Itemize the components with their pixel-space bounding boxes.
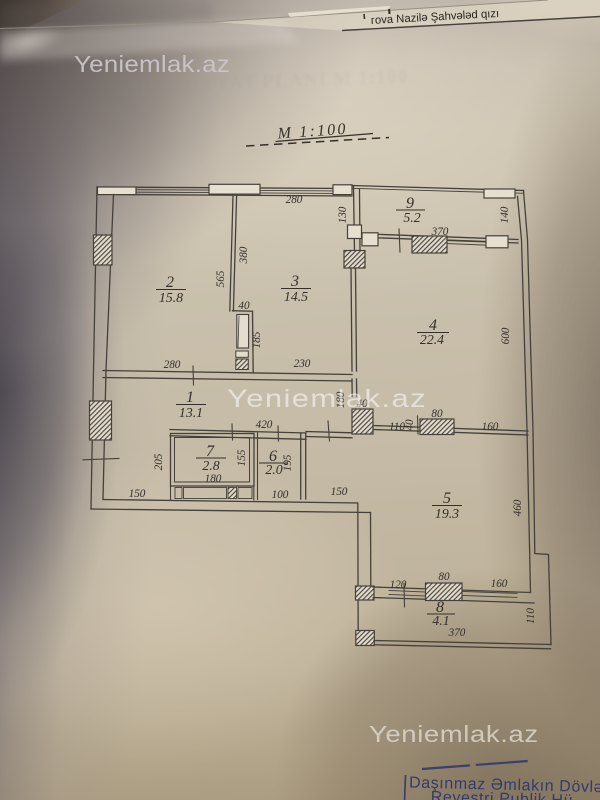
svg-text:370: 370 [431,226,449,238]
svg-text:M 1:100: M 1:100 [276,121,348,143]
svg-text:130: 130 [337,206,349,223]
svg-text:2.0: 2.0 [265,462,282,477]
svg-text:Yeniemlak.az: Yeniemlak.az [227,385,427,412]
svg-text:565: 565 [215,270,227,287]
svg-text:Yeniemlak.az: Yeniemlak.az [74,52,230,77]
svg-text:120: 120 [390,579,407,591]
svg-text:2.8: 2.8 [202,458,219,473]
svg-text:2: 2 [166,274,174,291]
svg-text:150: 150 [331,486,348,498]
svg-text:110: 110 [525,608,537,624]
svg-text:1: 1 [186,389,194,406]
svg-text:185: 185 [251,331,263,348]
svg-text:140: 140 [499,206,511,223]
svg-text:4.1: 4.1 [432,613,449,628]
svg-text:40: 40 [404,419,416,431]
svg-text:155: 155 [236,449,248,466]
svg-text:380: 380 [238,246,250,264]
svg-text:13.1: 13.1 [179,405,203,420]
svg-text:14.5: 14.5 [284,289,308,304]
svg-text:460: 460 [512,499,524,516]
svg-text:100: 100 [272,489,289,501]
svg-text:3: 3 [290,273,299,290]
svg-text:19.3: 19.3 [435,506,459,521]
svg-text:280: 280 [164,359,181,371]
svg-text:110: 110 [389,421,405,433]
svg-text:230: 230 [294,358,311,370]
svg-text:80: 80 [431,408,443,420]
svg-text:370: 370 [448,627,466,639]
svg-text:195: 195 [282,454,294,471]
svg-text:600: 600 [500,327,512,344]
svg-text:5: 5 [443,490,451,507]
svg-text:420: 420 [256,419,273,431]
svg-text:Yeniemlak.az: Yeniemlak.az [369,722,539,748]
svg-text:280: 280 [286,194,303,206]
svg-text:160: 160 [491,578,508,590]
svg-text:22.4: 22.4 [420,332,444,347]
svg-text:40: 40 [238,300,250,312]
svg-text:15.8: 15.8 [159,290,183,305]
svg-text:5.2: 5.2 [403,210,420,225]
svg-text:180: 180 [205,473,222,485]
svg-text:205: 205 [153,453,165,470]
svg-text:160: 160 [482,421,499,433]
svg-text:150: 150 [129,488,146,500]
svg-text:80: 80 [438,571,450,583]
